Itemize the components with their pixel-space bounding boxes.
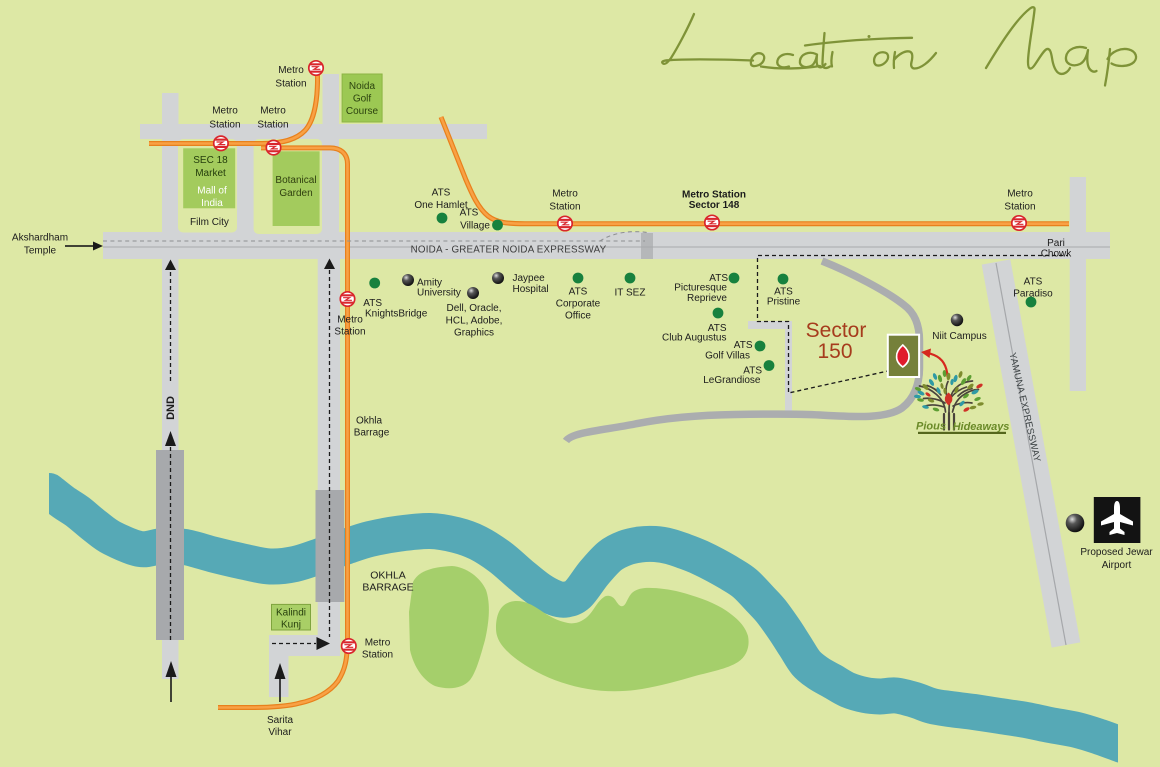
svg-text:Station: Station (257, 120, 288, 131)
svg-text:Corporate: Corporate (556, 299, 601, 310)
svg-text:Kunj: Kunj (281, 620, 301, 631)
svg-text:Station: Station (209, 120, 240, 131)
svg-text:LeGrandiose: LeGrandiose (703, 375, 761, 386)
svg-text:SEC 18: SEC 18 (193, 155, 228, 166)
svg-text:India: India (201, 198, 223, 209)
svg-text:ATS: ATS (363, 298, 382, 309)
svg-text:ATS: ATS (734, 340, 753, 351)
svg-text:Paradiso: Paradiso (1013, 289, 1053, 300)
svg-text:Kalindi: Kalindi (276, 608, 306, 619)
svg-text:Station: Station (362, 650, 393, 661)
svg-text:ATS: ATS (460, 208, 479, 219)
svg-text:Niit Campus: Niit Campus (932, 331, 986, 342)
svg-text:Metro: Metro (1007, 189, 1033, 200)
svg-text:Airport: Airport (1102, 560, 1132, 571)
svg-text:DND: DND (165, 396, 177, 420)
svg-text:Garden: Garden (279, 188, 312, 199)
svg-text:Botanical: Botanical (275, 175, 316, 186)
svg-text:ATS: ATS (569, 287, 588, 298)
svg-text:KnightsBridge: KnightsBridge (365, 309, 428, 320)
svg-text:Golf Villas: Golf Villas (705, 351, 750, 362)
svg-text:Metro: Metro (337, 315, 363, 326)
svg-text:Reprieve: Reprieve (687, 293, 727, 304)
svg-text:Noida: Noida (349, 81, 376, 92)
svg-text:Pious: Pious (916, 421, 946, 433)
svg-text:Hideaways: Hideaways (953, 421, 1010, 433)
svg-text:Metro Station: Metro Station (682, 190, 746, 201)
svg-text:Proposed Jewar: Proposed Jewar (1080, 547, 1153, 558)
svg-text:Metro: Metro (260, 106, 286, 117)
svg-text:Akshardham: Akshardham (12, 233, 68, 244)
svg-text:Graphics: Graphics (454, 328, 494, 339)
svg-text:Metro: Metro (552, 189, 578, 200)
svg-text:Metro: Metro (212, 106, 238, 117)
svg-text:Station: Station (1004, 202, 1035, 213)
svg-text:Temple: Temple (24, 246, 57, 257)
svg-text:OKHLA: OKHLA (370, 570, 406, 582)
svg-text:Office: Office (565, 311, 591, 322)
svg-text:Station: Station (275, 79, 306, 90)
svg-text:150: 150 (817, 340, 852, 363)
svg-text:ATS: ATS (432, 188, 451, 199)
svg-text:ATS: ATS (1024, 277, 1043, 288)
svg-text:Mall of: Mall of (197, 186, 227, 197)
svg-text:Sector: Sector (806, 319, 867, 342)
svg-text:BARRAGE: BARRAGE (362, 582, 413, 594)
svg-text:Chowk: Chowk (1041, 249, 1073, 260)
svg-text:University: University (417, 288, 461, 299)
svg-text:Jaypee: Jaypee (513, 273, 546, 284)
svg-text:Club Augustus: Club Augustus (662, 333, 727, 344)
svg-text:Village: Village (460, 221, 490, 232)
svg-text:Metro: Metro (278, 65, 304, 76)
svg-text:Course: Course (346, 106, 379, 117)
svg-text:Sector 148: Sector 148 (689, 200, 740, 211)
svg-text:NOIDA - GREATER NOIDA EXPRESSW: NOIDA - GREATER NOIDA EXPRESSWAY (411, 245, 607, 256)
svg-text:Golf: Golf (353, 94, 372, 105)
svg-text:IT SEZ: IT SEZ (615, 288, 646, 299)
svg-text:Okhla: Okhla (356, 416, 383, 427)
svg-text:HCL, Adobe,: HCL, Adobe, (446, 316, 503, 327)
svg-text:Vihar: Vihar (268, 727, 292, 738)
svg-text:Pari: Pari (1047, 238, 1065, 249)
svg-text:Metro: Metro (365, 638, 391, 649)
svg-text:Dell, Oracle,: Dell, Oracle, (446, 303, 501, 314)
svg-text:Station: Station (549, 202, 580, 213)
svg-text:Barrage: Barrage (354, 428, 390, 439)
svg-text:Pristine: Pristine (767, 297, 801, 308)
svg-text:Hospital: Hospital (513, 284, 549, 295)
svg-text:Film City: Film City (190, 217, 229, 228)
svg-text:Sarita: Sarita (267, 715, 294, 726)
svg-text:Station: Station (334, 327, 365, 338)
svg-text:Picturesque: Picturesque (674, 283, 727, 294)
svg-text:Market: Market (195, 168, 226, 179)
